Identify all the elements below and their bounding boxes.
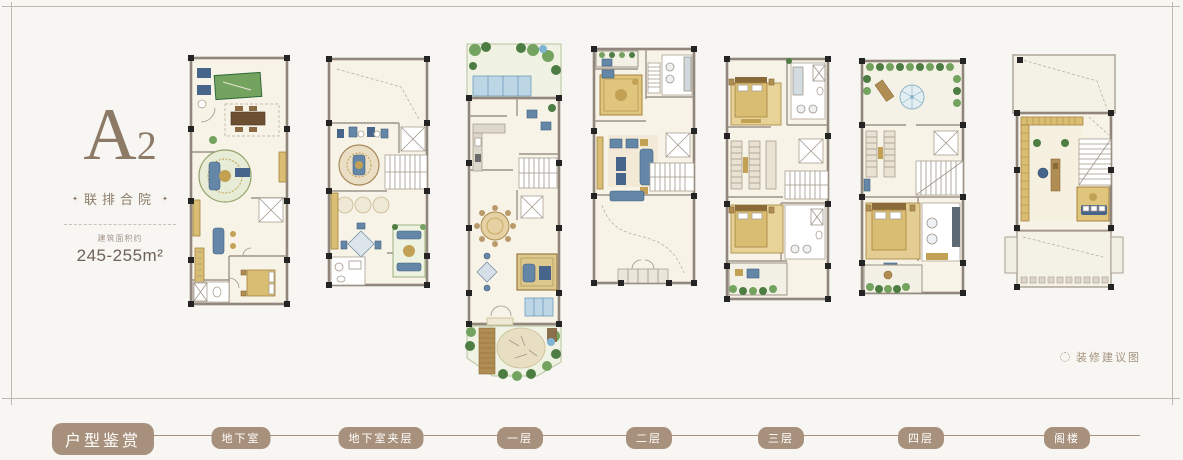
floorplan-first-floor xyxy=(463,40,565,382)
frame-top-line xyxy=(2,6,1180,7)
nav-pill-first-floor[interactable]: 一层 xyxy=(497,427,543,449)
floorplan-second-floor xyxy=(588,43,700,291)
circle-icon xyxy=(1060,352,1070,362)
floorplan-basement-mezzanine xyxy=(323,53,433,291)
floorplan-page: A2 ✦ 联排合院 ✦ 建筑面积约 245-255m² xyxy=(0,0,1183,460)
nav-pill-third-floor[interactable]: 三层 xyxy=(758,427,804,449)
unit-name: A2 xyxy=(46,98,194,183)
decor-suggestion-note: 装修建议图 xyxy=(1060,349,1141,365)
dashed-divider xyxy=(64,224,176,225)
frame-bottom-line xyxy=(2,398,1180,399)
floorplan-basement xyxy=(185,52,293,310)
nav-title-pill[interactable]: 户型鉴赏 xyxy=(52,423,154,455)
nav-pill-second-floor[interactable]: 二层 xyxy=(626,427,672,449)
nav-pill-fourth-floor[interactable]: 四层 xyxy=(898,427,944,449)
floorplan-fourth-floor xyxy=(856,55,969,303)
area-value: 245-255m² xyxy=(46,246,194,266)
nav-pill-attic[interactable]: 阁楼 xyxy=(1044,427,1090,449)
decor-note-label: 装修建议图 xyxy=(1076,349,1141,365)
unit-info: A2 ✦ 联排合院 ✦ 建筑面积约 245-255m² xyxy=(46,98,194,266)
area-label: 建筑面积约 xyxy=(46,233,194,244)
nav-pill-basement-mezzanine[interactable]: 地下室夹层 xyxy=(339,427,424,449)
nav-pill-basement[interactable]: 地下室 xyxy=(212,427,271,449)
diamond-icon: ✦ xyxy=(72,195,78,203)
diamond-icon: ✦ xyxy=(162,195,168,203)
floorplan-attic xyxy=(1003,47,1125,297)
floorplan-third-floor xyxy=(721,53,834,305)
frame-right-line xyxy=(1172,2,1173,405)
unit-category: ✦ 联排合院 ✦ xyxy=(46,189,194,208)
frame-left-line xyxy=(11,2,12,405)
